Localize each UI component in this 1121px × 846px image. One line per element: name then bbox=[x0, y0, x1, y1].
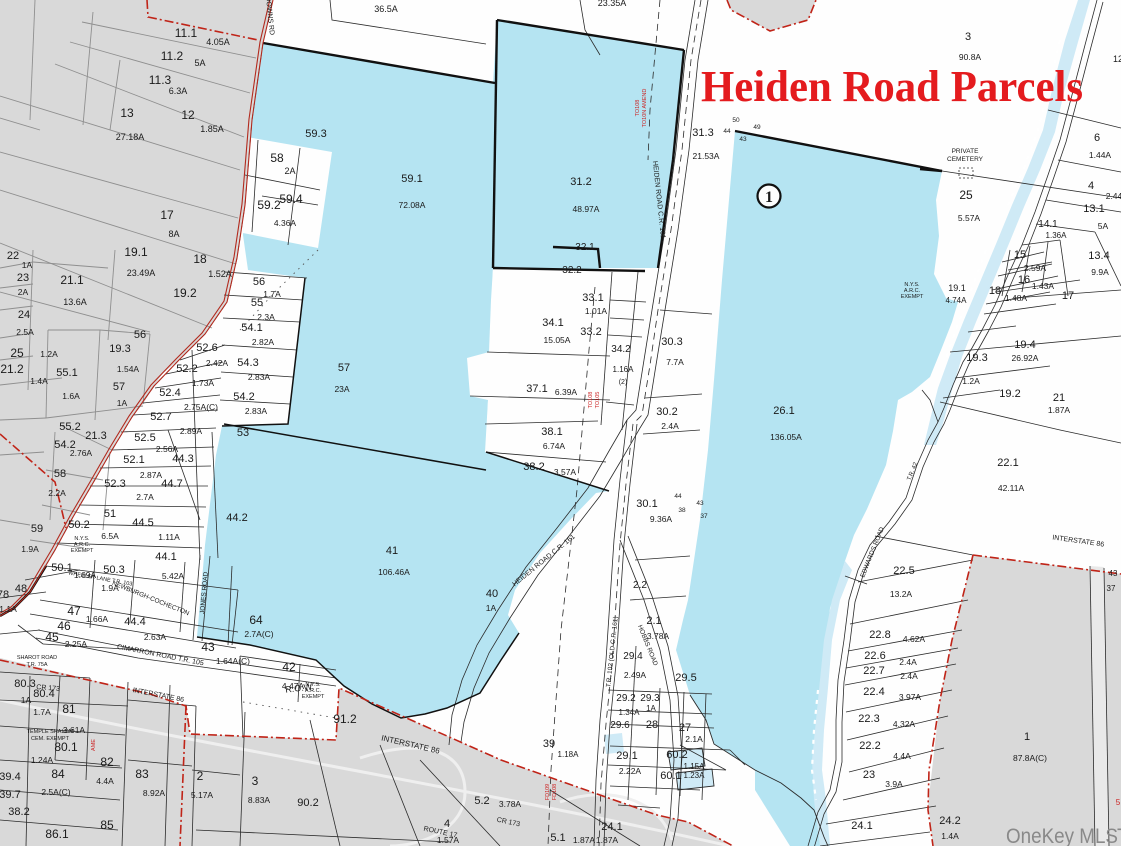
svg-text:29.4: 29.4 bbox=[623, 651, 643, 662]
svg-text:3.78A: 3.78A bbox=[647, 631, 670, 641]
svg-text:30.3: 30.3 bbox=[661, 336, 682, 348]
svg-text:22.3: 22.3 bbox=[858, 713, 879, 725]
svg-text:22.5: 22.5 bbox=[893, 565, 914, 577]
svg-text:36.5A: 36.5A bbox=[374, 4, 398, 14]
svg-text:2.42A: 2.42A bbox=[206, 358, 229, 368]
svg-text:28: 28 bbox=[646, 719, 658, 731]
svg-text:2.82A: 2.82A bbox=[252, 337, 275, 347]
svg-text:2A: 2A bbox=[284, 166, 295, 176]
svg-text:21.2: 21.2 bbox=[0, 362, 24, 376]
svg-text:19.4: 19.4 bbox=[1014, 339, 1035, 351]
svg-text:31.3: 31.3 bbox=[692, 127, 713, 139]
svg-text:2.5A: 2.5A bbox=[16, 327, 34, 337]
svg-text:1.52A: 1.52A bbox=[208, 269, 232, 279]
svg-text:22.1: 22.1 bbox=[997, 457, 1018, 469]
svg-text:1.9A: 1.9A bbox=[21, 544, 39, 554]
svg-text:5.1: 5.1 bbox=[550, 832, 565, 844]
svg-text:38.2: 38.2 bbox=[523, 461, 544, 473]
svg-text:15.05A: 15.05A bbox=[544, 335, 571, 345]
svg-text:33.1: 33.1 bbox=[582, 292, 603, 304]
svg-text:46: 46 bbox=[57, 619, 71, 633]
svg-text:4.74A: 4.74A bbox=[946, 296, 968, 305]
svg-text:2.4A: 2.4A bbox=[900, 671, 918, 681]
svg-text:6: 6 bbox=[1094, 132, 1100, 144]
svg-text:SHAROT ROAD: SHAROT ROAD bbox=[17, 655, 57, 661]
svg-text:22.2: 22.2 bbox=[859, 740, 880, 752]
svg-text:50: 50 bbox=[732, 117, 740, 124]
svg-text:24.2: 24.2 bbox=[939, 815, 960, 827]
svg-text:15: 15 bbox=[1014, 249, 1026, 261]
svg-text:1A: 1A bbox=[486, 603, 497, 613]
svg-text:57: 57 bbox=[113, 381, 125, 393]
svg-text:52.5: 52.5 bbox=[134, 432, 155, 444]
svg-text:48: 48 bbox=[15, 583, 27, 595]
svg-text:3.78A: 3.78A bbox=[499, 799, 522, 809]
svg-text:23A: 23A bbox=[334, 384, 349, 394]
svg-text:51: 51 bbox=[104, 508, 116, 520]
svg-text:57: 57 bbox=[338, 362, 350, 374]
svg-text:1.24A: 1.24A bbox=[31, 755, 54, 765]
svg-text:4.4A: 4.4A bbox=[96, 776, 114, 786]
svg-text:5A: 5A bbox=[194, 58, 205, 68]
svg-text:4: 4 bbox=[1088, 180, 1094, 192]
svg-text:59.2: 59.2 bbox=[257, 198, 281, 212]
svg-text:23: 23 bbox=[17, 272, 29, 284]
svg-text:2A: 2A bbox=[18, 287, 29, 297]
svg-text:2.75A(C): 2.75A(C) bbox=[184, 402, 218, 412]
svg-text:3.9A: 3.9A bbox=[885, 779, 903, 789]
svg-text:1.87A: 1.87A bbox=[596, 835, 619, 845]
svg-text:23.49A: 23.49A bbox=[127, 268, 156, 278]
svg-text:TO105: TO105 bbox=[595, 392, 601, 409]
svg-text:52.4: 52.4 bbox=[159, 387, 180, 399]
svg-text:39.4: 39.4 bbox=[0, 771, 21, 783]
svg-text:43: 43 bbox=[739, 136, 747, 143]
svg-text:1.23A: 1.23A bbox=[684, 771, 706, 780]
svg-text:38: 38 bbox=[678, 507, 686, 514]
svg-text:1: 1 bbox=[765, 189, 773, 206]
svg-text:CEMETERY: CEMETERY bbox=[947, 156, 984, 163]
svg-text:2.63A: 2.63A bbox=[144, 632, 167, 642]
svg-text:1.2A: 1.2A bbox=[40, 349, 58, 359]
svg-text:1.34A: 1.34A bbox=[619, 708, 641, 717]
svg-text:2.87A: 2.87A bbox=[140, 470, 163, 480]
svg-text:58: 58 bbox=[54, 468, 66, 480]
svg-text:39.7: 39.7 bbox=[0, 789, 21, 801]
svg-text:29.6: 29.6 bbox=[610, 720, 630, 731]
svg-text:5.17A: 5.17A bbox=[191, 790, 214, 800]
svg-text:1.73A: 1.73A bbox=[192, 378, 215, 388]
svg-text:29.2: 29.2 bbox=[616, 693, 636, 704]
svg-text:21.1: 21.1 bbox=[60, 273, 84, 287]
svg-text:2.3A: 2.3A bbox=[257, 312, 275, 322]
svg-text:1.4A: 1.4A bbox=[30, 376, 48, 386]
svg-text:56: 56 bbox=[253, 276, 265, 288]
svg-text:24.1: 24.1 bbox=[601, 821, 622, 833]
svg-text:2.7A(C): 2.7A(C) bbox=[244, 629, 273, 639]
svg-text:64: 64 bbox=[249, 613, 263, 627]
svg-text:TO10N AMEND: TO10N AMEND bbox=[642, 89, 648, 128]
svg-text:90.8A: 90.8A bbox=[959, 52, 982, 62]
svg-text:3.57A: 3.57A bbox=[554, 467, 577, 477]
svg-text:52.2: 52.2 bbox=[176, 363, 197, 375]
svg-text:22.6: 22.6 bbox=[864, 650, 885, 662]
svg-text:91.2: 91.2 bbox=[333, 712, 357, 726]
svg-text:1.01A: 1.01A bbox=[585, 306, 608, 316]
svg-text:44.5: 44.5 bbox=[132, 517, 153, 529]
svg-text:AME: AME bbox=[91, 739, 97, 751]
svg-text:59: 59 bbox=[31, 523, 43, 535]
svg-text:43: 43 bbox=[201, 640, 215, 654]
svg-text:T.R. 75A: T.R. 75A bbox=[26, 662, 47, 668]
svg-text:83: 83 bbox=[135, 767, 149, 781]
svg-text:1.11A: 1.11A bbox=[158, 532, 180, 542]
svg-text:2: 2 bbox=[197, 769, 204, 783]
svg-text:41: 41 bbox=[386, 545, 398, 557]
svg-text:5: 5 bbox=[1116, 798, 1121, 807]
svg-text:7.7A: 7.7A bbox=[666, 357, 684, 367]
svg-text:CEM. EXEMPT: CEM. EXEMPT bbox=[31, 736, 70, 742]
svg-text:38.2: 38.2 bbox=[8, 806, 29, 818]
svg-text:44: 44 bbox=[674, 493, 682, 500]
svg-text:2.59A: 2.59A bbox=[1024, 263, 1047, 273]
svg-text:1.7A: 1.7A bbox=[263, 289, 281, 299]
svg-text:25: 25 bbox=[959, 188, 973, 202]
svg-text:FD108: FD108 bbox=[552, 784, 558, 801]
svg-text:84: 84 bbox=[51, 767, 65, 781]
svg-text:72.08A: 72.08A bbox=[399, 200, 426, 210]
svg-text:23: 23 bbox=[863, 769, 875, 781]
svg-text:1A: 1A bbox=[117, 398, 128, 408]
svg-text:EXEMPT: EXEMPT bbox=[302, 694, 325, 700]
svg-text:43: 43 bbox=[1109, 569, 1118, 578]
svg-text:1.7A: 1.7A bbox=[33, 707, 51, 717]
svg-text:1: 1 bbox=[1024, 731, 1030, 743]
svg-text:2.5A(C): 2.5A(C) bbox=[41, 787, 70, 797]
svg-text:19.1: 19.1 bbox=[124, 245, 148, 259]
svg-text:37: 37 bbox=[1107, 584, 1116, 593]
svg-text:1.2A: 1.2A bbox=[962, 376, 980, 386]
svg-text:4: 4 bbox=[444, 818, 450, 830]
svg-text:13.1: 13.1 bbox=[1083, 203, 1104, 215]
svg-text:32.2: 32.2 bbox=[562, 265, 582, 276]
svg-text:2.1: 2.1 bbox=[646, 615, 661, 627]
svg-text:5A: 5A bbox=[1098, 221, 1109, 231]
svg-text:OneKey MLS: OneKey MLS bbox=[1006, 825, 1118, 846]
svg-text:TEMPLE SHALOM: TEMPLE SHALOM bbox=[27, 729, 74, 735]
svg-text:2.4A: 2.4A bbox=[661, 421, 679, 431]
svg-text:27.18A: 27.18A bbox=[116, 132, 145, 142]
svg-text:TO108: TO108 bbox=[588, 392, 594, 409]
svg-text:136.05A: 136.05A bbox=[770, 432, 802, 442]
svg-text:2.2A: 2.2A bbox=[48, 488, 66, 498]
svg-text:5.57A: 5.57A bbox=[958, 213, 981, 223]
svg-text:4.32A: 4.32A bbox=[893, 719, 916, 729]
svg-text:PRIVATE: PRIVATE bbox=[952, 148, 980, 155]
svg-text:19.2: 19.2 bbox=[999, 388, 1020, 400]
svg-text:44: 44 bbox=[723, 128, 731, 135]
svg-text:87.8A(C): 87.8A(C) bbox=[1013, 753, 1047, 763]
svg-text:54.3: 54.3 bbox=[237, 357, 258, 369]
svg-text:78: 78 bbox=[0, 589, 9, 601]
svg-text:1.54A: 1.54A bbox=[117, 364, 140, 374]
svg-text:42: 42 bbox=[282, 660, 296, 674]
svg-text:42.11A: 42.11A bbox=[998, 483, 1025, 493]
svg-text:13.6A: 13.6A bbox=[63, 297, 87, 307]
svg-text:18: 18 bbox=[193, 252, 207, 266]
svg-text:1.18A: 1.18A bbox=[558, 750, 580, 759]
svg-text:21.53A: 21.53A bbox=[693, 151, 720, 161]
svg-text:2.89A: 2.89A bbox=[180, 426, 203, 436]
svg-text:1A: 1A bbox=[21, 695, 32, 705]
svg-text:19.3: 19.3 bbox=[109, 343, 130, 355]
svg-text:45: 45 bbox=[45, 630, 59, 644]
svg-text:43: 43 bbox=[696, 500, 704, 507]
svg-text:32.1: 32.1 bbox=[575, 242, 595, 253]
svg-text:90.2: 90.2 bbox=[297, 797, 318, 809]
svg-text:22.4: 22.4 bbox=[863, 686, 884, 698]
svg-text:1.64A(C): 1.64A(C) bbox=[216, 656, 250, 666]
svg-text:54.1: 54.1 bbox=[241, 322, 262, 334]
svg-text:1.16A: 1.16A bbox=[613, 365, 635, 374]
svg-text:2.4A: 2.4A bbox=[899, 657, 917, 667]
svg-text:2.83A: 2.83A bbox=[248, 372, 271, 382]
svg-text:3: 3 bbox=[252, 774, 259, 788]
svg-text:6.5A: 6.5A bbox=[101, 531, 119, 541]
svg-text:53: 53 bbox=[237, 427, 249, 439]
svg-text:24: 24 bbox=[18, 309, 30, 321]
svg-text:22: 22 bbox=[7, 250, 19, 262]
svg-text:11.1: 11.1 bbox=[175, 26, 198, 40]
svg-text:25: 25 bbox=[10, 346, 24, 360]
svg-text:26.92A: 26.92A bbox=[1012, 353, 1039, 363]
svg-text:FD109: FD109 bbox=[545, 784, 551, 801]
svg-text:29.1: 29.1 bbox=[616, 750, 637, 762]
svg-text:18: 18 bbox=[989, 285, 1001, 297]
svg-text:60.2: 60.2 bbox=[666, 749, 687, 761]
svg-text:1.4A: 1.4A bbox=[941, 831, 959, 841]
svg-text:1.87A: 1.87A bbox=[573, 835, 596, 845]
svg-text:82: 82 bbox=[100, 755, 114, 769]
svg-text:9.9A: 9.9A bbox=[1091, 267, 1109, 277]
svg-text:30.1: 30.1 bbox=[636, 498, 657, 510]
svg-text:22.7: 22.7 bbox=[863, 665, 884, 677]
svg-text:4.05A: 4.05A bbox=[206, 37, 230, 47]
svg-text:44.2: 44.2 bbox=[226, 512, 247, 524]
svg-text:55.1: 55.1 bbox=[56, 367, 77, 379]
svg-text:1.44A: 1.44A bbox=[1089, 150, 1112, 160]
svg-text:1.87A: 1.87A bbox=[1048, 405, 1071, 415]
svg-text:13.4: 13.4 bbox=[1088, 250, 1109, 262]
svg-text:4.4A: 4.4A bbox=[893, 751, 911, 761]
svg-text:50.3: 50.3 bbox=[103, 564, 124, 576]
svg-text:13.2A: 13.2A bbox=[890, 589, 913, 599]
svg-text:2.83A: 2.83A bbox=[245, 406, 268, 416]
svg-text:8A: 8A bbox=[168, 229, 179, 239]
svg-text:14.1: 14.1 bbox=[1038, 219, 1058, 230]
svg-text:55: 55 bbox=[251, 297, 263, 309]
svg-text:37.1: 37.1 bbox=[526, 383, 547, 395]
svg-text:4.62A: 4.62A bbox=[903, 634, 926, 644]
svg-text:16: 16 bbox=[1018, 274, 1030, 286]
svg-text:6.39A: 6.39A bbox=[555, 387, 578, 397]
svg-text:86.1: 86.1 bbox=[45, 827, 69, 841]
svg-text:29.3: 29.3 bbox=[640, 693, 660, 704]
svg-text:EXEMPT: EXEMPT bbox=[901, 294, 924, 300]
svg-text:38.1: 38.1 bbox=[541, 426, 562, 438]
svg-text:6.3A: 6.3A bbox=[169, 86, 188, 96]
svg-text:21.3: 21.3 bbox=[85, 430, 106, 442]
svg-text:13: 13 bbox=[120, 106, 134, 120]
svg-text:44.7: 44.7 bbox=[161, 478, 182, 490]
svg-text:2.7A: 2.7A bbox=[136, 492, 154, 502]
svg-text:19.2: 19.2 bbox=[173, 286, 197, 300]
svg-text:1.1A: 1.1A bbox=[0, 604, 17, 614]
svg-text:3.97A: 3.97A bbox=[899, 692, 922, 702]
svg-text:37: 37 bbox=[700, 513, 708, 520]
svg-text:23.35A: 23.35A bbox=[598, 0, 627, 8]
svg-text:1.15A: 1.15A bbox=[684, 762, 706, 771]
svg-text:(2): (2) bbox=[619, 379, 628, 386]
svg-text:17: 17 bbox=[1062, 290, 1074, 302]
svg-text:31.2: 31.2 bbox=[570, 176, 591, 188]
svg-text:59.4: 59.4 bbox=[279, 192, 303, 206]
svg-text:1.48A: 1.48A bbox=[1005, 293, 1028, 303]
svg-text:106.46A: 106.46A bbox=[378, 567, 410, 577]
svg-text:1A: 1A bbox=[646, 704, 656, 713]
svg-text:24.1: 24.1 bbox=[851, 820, 872, 832]
svg-text:12: 12 bbox=[181, 108, 195, 122]
svg-text:34.2: 34.2 bbox=[611, 344, 631, 355]
svg-text:59.3: 59.3 bbox=[305, 128, 326, 140]
svg-text:8.92A: 8.92A bbox=[143, 788, 166, 798]
svg-text:39: 39 bbox=[543, 738, 555, 750]
svg-text:EXEMPT: EXEMPT bbox=[71, 548, 94, 554]
svg-text:3: 3 bbox=[965, 31, 971, 43]
svg-text:40: 40 bbox=[486, 588, 498, 600]
svg-text:34.1: 34.1 bbox=[542, 317, 563, 329]
svg-text:47: 47 bbox=[67, 604, 81, 618]
svg-text:8.83A: 8.83A bbox=[248, 795, 271, 805]
svg-text:6.74A: 6.74A bbox=[543, 441, 566, 451]
svg-text:2.44: 2.44 bbox=[1106, 191, 1121, 201]
svg-text:54.2: 54.2 bbox=[233, 391, 254, 403]
svg-text:52.3: 52.3 bbox=[104, 478, 125, 490]
svg-text:26.1: 26.1 bbox=[773, 405, 794, 417]
svg-text:80.1: 80.1 bbox=[54, 740, 78, 754]
svg-text:52.6: 52.6 bbox=[196, 342, 217, 354]
svg-text:5.2: 5.2 bbox=[474, 795, 489, 807]
svg-text:33.2: 33.2 bbox=[580, 326, 601, 338]
svg-text:T: T bbox=[1117, 825, 1121, 846]
svg-text:2.2: 2.2 bbox=[633, 580, 647, 591]
svg-text:1A: 1A bbox=[22, 260, 33, 270]
svg-text:81: 81 bbox=[62, 702, 76, 716]
svg-text:2.25A: 2.25A bbox=[65, 639, 88, 649]
svg-text:21: 21 bbox=[1053, 392, 1065, 404]
svg-text:60.1: 60.1 bbox=[660, 770, 681, 782]
svg-text:49: 49 bbox=[753, 124, 761, 131]
svg-text:1.43A: 1.43A bbox=[1032, 281, 1055, 291]
svg-text:29.5: 29.5 bbox=[675, 672, 696, 684]
svg-text:58: 58 bbox=[270, 151, 284, 165]
svg-text:48.97A: 48.97A bbox=[573, 204, 600, 214]
svg-text:56: 56 bbox=[134, 329, 146, 341]
svg-text:22.8: 22.8 bbox=[869, 629, 890, 641]
svg-text:44.4: 44.4 bbox=[124, 616, 145, 628]
svg-text:1.36A: 1.36A bbox=[1046, 231, 1068, 240]
svg-text:2.49A: 2.49A bbox=[624, 670, 647, 680]
svg-text:44.1: 44.1 bbox=[155, 551, 176, 563]
svg-text:19.1: 19.1 bbox=[948, 283, 966, 293]
svg-text:2.22A: 2.22A bbox=[619, 766, 642, 776]
svg-text:1.85A: 1.85A bbox=[200, 124, 224, 134]
svg-text:TO108: TO108 bbox=[635, 100, 641, 117]
svg-text:52.1: 52.1 bbox=[123, 454, 144, 466]
svg-text:30.2: 30.2 bbox=[656, 406, 677, 418]
svg-text:2.1A: 2.1A bbox=[685, 734, 703, 744]
svg-text:44.3: 44.3 bbox=[172, 453, 193, 465]
svg-text:1.66A: 1.66A bbox=[86, 614, 109, 624]
svg-text:9.36A: 9.36A bbox=[650, 514, 673, 524]
svg-text:59.1: 59.1 bbox=[401, 173, 422, 185]
svg-text:52.7: 52.7 bbox=[150, 411, 171, 423]
svg-text:2.76A: 2.76A bbox=[70, 448, 93, 458]
svg-text:55.2: 55.2 bbox=[59, 421, 80, 433]
svg-text:11.2: 11.2 bbox=[161, 49, 184, 63]
svg-text:19.3: 19.3 bbox=[966, 352, 987, 364]
svg-text:11.3: 11.3 bbox=[149, 73, 172, 87]
svg-text:50.2: 50.2 bbox=[68, 519, 89, 531]
svg-text:17: 17 bbox=[160, 208, 174, 222]
svg-text:12: 12 bbox=[1113, 54, 1121, 64]
svg-text:5.42A: 5.42A bbox=[162, 571, 185, 581]
svg-text:85: 85 bbox=[100, 818, 114, 832]
svg-text:Heiden Road Parcels: Heiden Road Parcels bbox=[701, 62, 1083, 111]
svg-text:1.6A: 1.6A bbox=[62, 391, 80, 401]
svg-text:27: 27 bbox=[679, 722, 691, 734]
svg-text:4.36A: 4.36A bbox=[274, 218, 297, 228]
